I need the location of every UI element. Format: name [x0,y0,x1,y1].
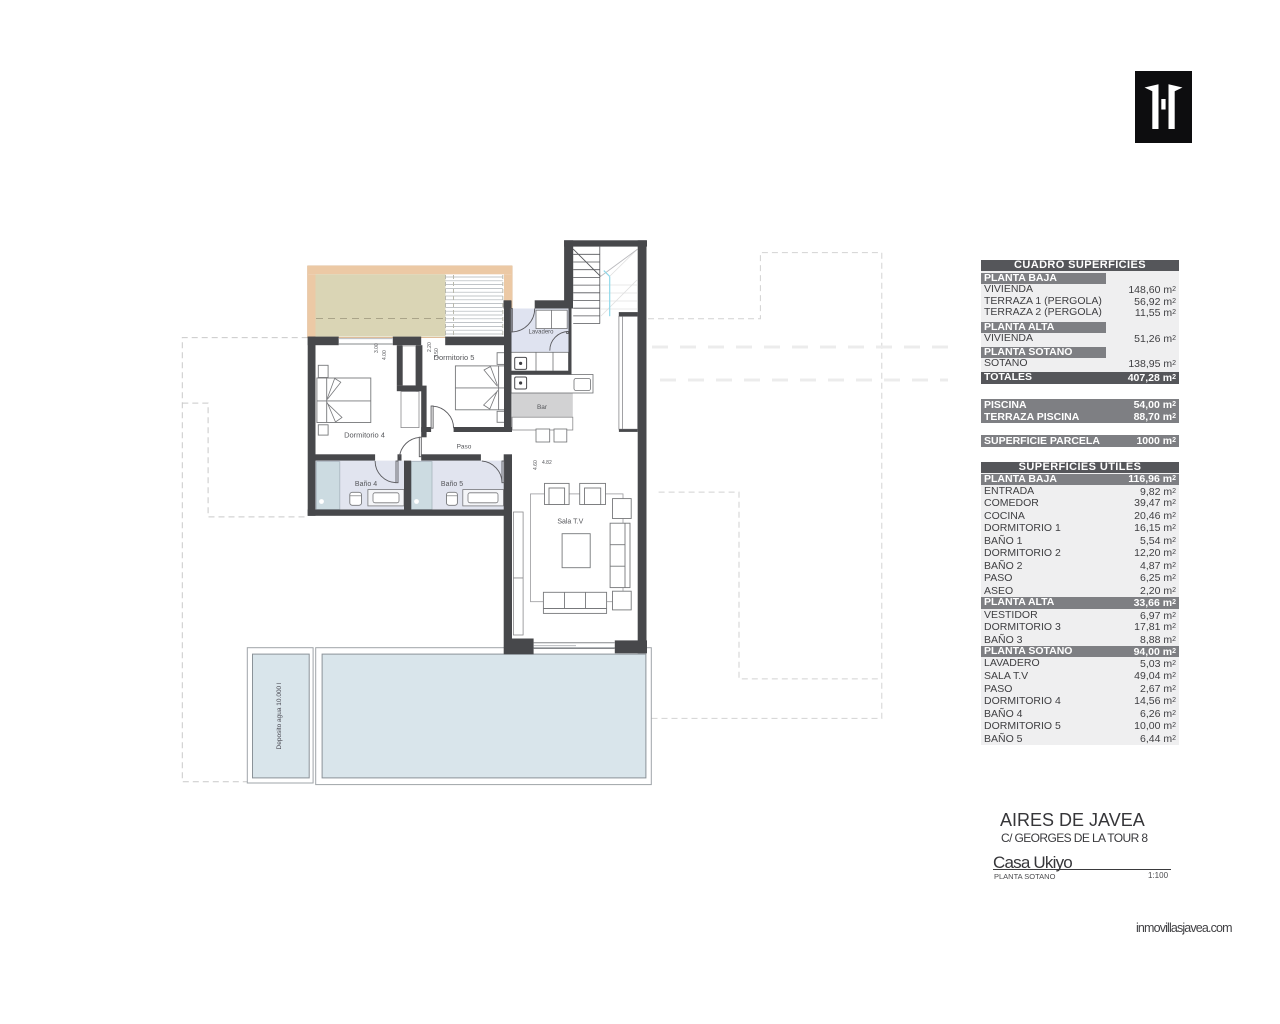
svg-text:4.82: 4.82 [542,460,552,466]
svg-text:Baño 5: Baño 5 [441,481,463,488]
svg-text:Sala T.V: Sala T.V [557,518,583,525]
svg-text:Bar: Bar [537,404,548,411]
svg-text:2.20: 2.20 [427,342,433,352]
svg-text:Baño 4: Baño 4 [355,481,377,488]
svg-text:Lavadero: Lavadero [528,330,554,336]
svg-text:4.60: 4.60 [533,460,539,470]
svg-text:Paso: Paso [457,444,472,451]
svg-text:3.50: 3.50 [434,348,440,358]
svg-text:Deposito agua 10.000 l: Deposito agua 10.000 l [276,682,283,749]
svg-text:3.00: 3.00 [374,343,380,353]
svg-text:4.00: 4.00 [382,350,388,360]
svg-text:Dormitorio 4: Dormitorio 4 [344,431,385,440]
